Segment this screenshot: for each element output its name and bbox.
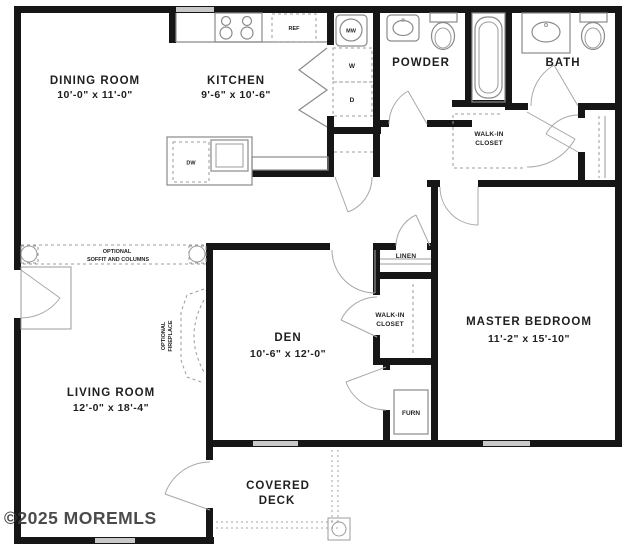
wall-closet-col-left-b [373,335,380,358]
column-icon [21,246,37,262]
kitchen-label: KITCHEN [207,75,265,87]
soffit-label-1: OPTIONAL [103,249,132,255]
microwave-label: MW [346,29,357,35]
wall-kitchen-laundry-stub [327,6,334,45]
wall-bath-bottom-a [505,103,528,110]
powder-door [389,91,427,124]
kitchen-sink-icon [211,140,248,171]
column-icon [189,246,205,262]
powder-toilet-icon [430,13,457,50]
dryer-icon: D [333,82,372,116]
dishwasher-label: DW [186,161,196,167]
soffit-annotation: OPTIONAL SOFFIT AND COLUMNS [21,245,206,264]
pantry-door [335,177,372,212]
svg-text:FIREPLACE: FIREPLACE [168,320,174,352]
walk-in-master-label-2: CLOSET [376,321,404,328]
linen-door [396,215,430,246]
living-room-dims: 12'-0" x 18'-4" [73,402,149,414]
furnace-icon: FURN [394,390,428,434]
covered-deck-label-1: COVERED [246,480,310,492]
wall-powder-bottom-b [427,120,472,127]
refrigerator-label: REF [289,26,301,32]
living-room-label: LIVING ROOM [67,387,155,399]
wall-pantry-top [327,127,381,134]
bath-vanity-sink-icon [522,13,570,53]
bifold-door [299,48,327,127]
wall-right [615,6,622,447]
window-kitchen [176,7,214,12]
kitchen-island: DW [167,137,252,185]
floor-plan-svg: REF MW W D DW [0,0,639,547]
bathtub-icon [472,13,505,102]
wall-linen-bottom [373,272,438,279]
wall-powder-bottom-a [373,120,389,127]
deck-post [328,518,350,540]
dryer-label: D [350,97,355,104]
bath-label: BATH [545,57,580,69]
right-closet-door [546,115,578,152]
wall-left-upper [14,6,21,270]
walk-in-top-label-2: CLOSET [475,140,503,147]
walk-in-master-door [341,297,377,337]
bath-toilet-icon [580,13,607,50]
wall-hall-bottom-stub [427,180,440,187]
wall-pantry-right [373,127,380,177]
window-master [483,441,530,446]
washer-label: W [349,63,356,70]
wall-walkin2-bottom [373,358,438,365]
wall-top [14,6,622,13]
refrigerator-icon: REF [272,14,316,42]
room-labels: DINING ROOM 10'-0" x 11'-0" KITCHEN 9'-6… [50,57,592,507]
wall-furn-left-b [383,410,390,440]
entry-door [21,267,71,329]
walk-in-top-door [527,112,575,167]
floor-plan: REF MW W D DW [0,0,639,547]
deck-door [165,462,210,510]
powder-label: POWDER [392,57,450,69]
wall-kitchen-bar [252,170,328,177]
wall-tub-bottom [452,100,512,107]
den-dims: 10'-6" x 12'-0" [250,348,326,360]
covered-deck-label-2: DECK [259,495,296,507]
wall-deck-left-lower [206,508,213,544]
wall-den-left [206,243,213,460]
svg-text:OPTIONAL: OPTIONAL [161,321,167,350]
wall-den-top [206,243,330,250]
windows [95,7,530,543]
powder-sink-icon [387,15,419,41]
dining-room-label: DINING ROOM [50,75,140,87]
fireplace-label: OPTIONAL FIREPLACE [161,320,174,352]
walk-in-master-label-1: WALK-IN [375,312,404,319]
wall-master-top [478,180,622,187]
master-bedroom-label: MASTER BEDROOM [466,316,592,328]
furnace-door [346,367,386,410]
fireplace-outline [181,289,204,383]
microwave-icon: MW [336,15,367,46]
soffit-label-2: SOFFIT AND COLUMNS [87,257,149,263]
window-deck-wall [253,441,298,446]
furnace-label: FURN [402,410,420,417]
wall-master-west [431,187,438,447]
wall-powder-left [373,6,380,127]
wall-right-closet-left-a [578,110,585,118]
wall-bath-left [505,6,512,110]
master-door [440,187,478,225]
watermark: ©2025 MOREMLS [4,508,157,528]
master-bedroom-dims: 11'-2" x 15'-10" [488,333,570,345]
linen-label: LINEN [396,253,417,260]
washer-icon: W [333,48,372,82]
kitchen-dims: 9'-6" x 10'-6" [201,89,271,101]
den-door [332,250,375,293]
bar-counter [252,157,328,170]
wall-dining-kitchen-stub [169,6,176,43]
window-living [95,538,135,543]
wall-linen-top-a [373,243,396,250]
stove-icon [215,13,262,42]
dining-room-dims: 10'-0" x 11'-0" [57,89,133,101]
bath-door [531,65,578,106]
walk-in-top-label-1: WALK-IN [474,131,503,138]
fireplace-annotation: OPTIONAL FIREPLACE [161,289,204,383]
wall-bath-bottom-b [578,103,622,110]
den-label: DEN [274,332,301,344]
wall-tub-left [465,6,472,107]
wall-closet-col-left-a [373,250,380,295]
